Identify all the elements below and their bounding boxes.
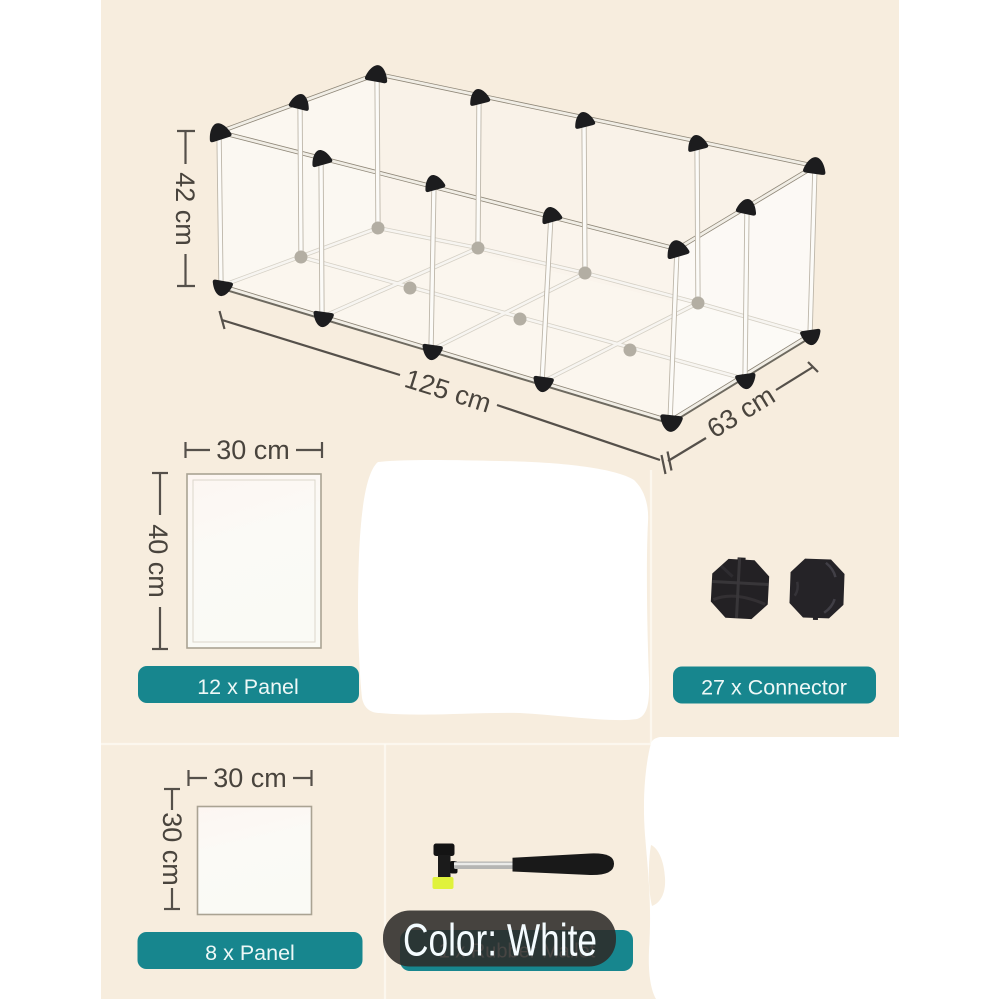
svg-text:8 x Panel: 8 x Panel [205,941,295,965]
svg-text:30 cm: 30 cm [216,435,290,465]
svg-text:42 cm: 42 cm [170,172,200,246]
svg-text:Color: White: Color: White [403,915,597,966]
svg-text:40 cm: 40 cm [143,524,173,598]
svg-text:12 x Panel: 12 x Panel [197,675,299,699]
svg-text:30 cm: 30 cm [213,763,287,793]
svg-text:27 x Connector: 27 x Connector [701,676,847,700]
svg-text:30 cm: 30 cm [157,812,187,886]
